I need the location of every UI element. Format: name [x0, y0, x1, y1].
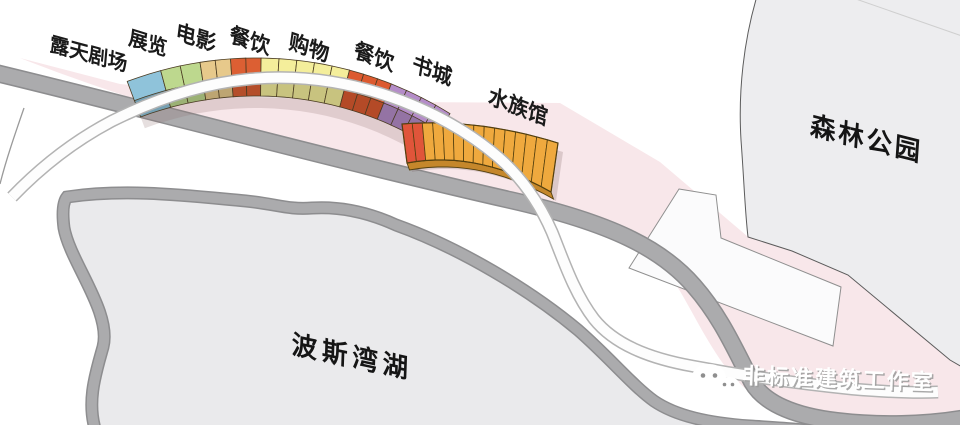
site-plan-diagram: 露天剧场 展览 电影 餐饮 购物 餐饮 书城 水族馆 森林公园 波斯湾湖 非标准…	[0, 0, 960, 425]
